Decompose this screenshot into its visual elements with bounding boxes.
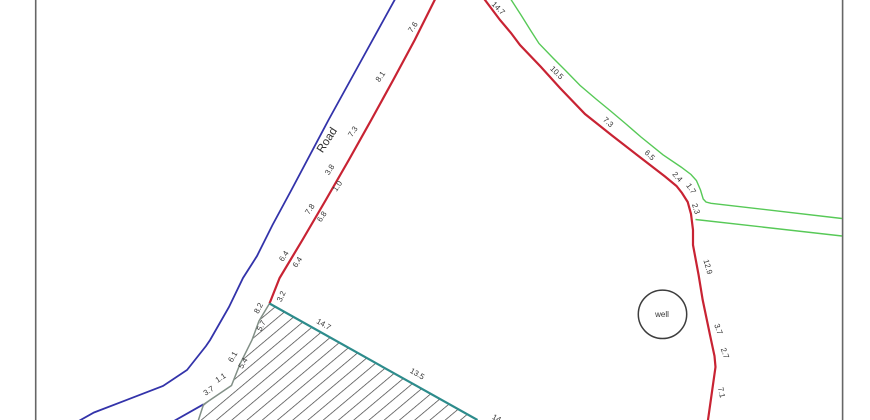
- svg-text:well: well: [654, 310, 669, 319]
